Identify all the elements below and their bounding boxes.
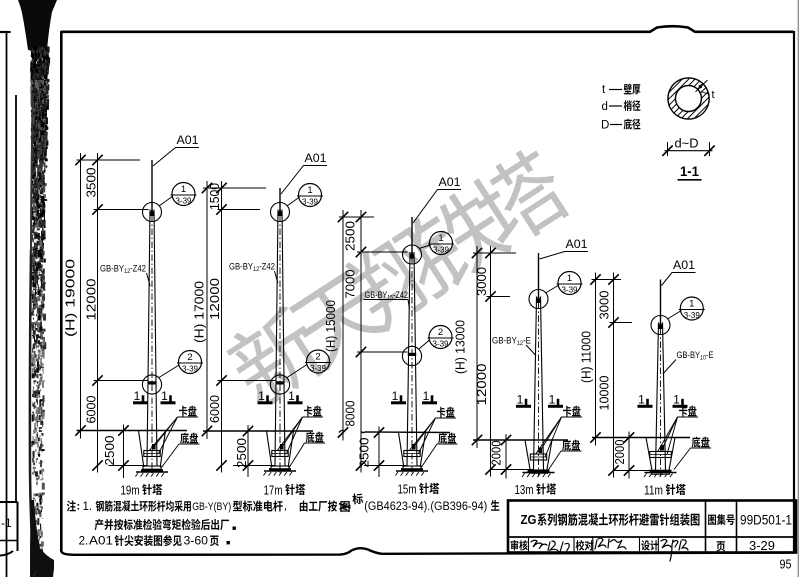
- svg-text:2: 2: [315, 352, 320, 363]
- svg-text:12000: 12000: [84, 279, 99, 321]
- svg-text:3-39: 3-39: [310, 363, 326, 373]
- svg-text:17m: 17m: [264, 484, 283, 498]
- svg-text:19m: 19m: [121, 484, 140, 498]
- svg-text:d~D: d~D: [675, 137, 699, 151]
- svg-text:6000: 6000: [207, 395, 222, 423]
- svg-text:GB-Y(BY): GB-Y(BY): [192, 501, 231, 513]
- svg-text:D: D: [601, 120, 609, 132]
- svg-text:1: 1: [689, 299, 694, 310]
- svg-text:99D501-1: 99D501-1: [740, 513, 792, 528]
- svg-text:11m: 11m: [644, 484, 663, 498]
- svg-text:1: 1: [438, 233, 443, 244]
- svg-text:3-39: 3-39: [433, 245, 449, 255]
- svg-text:1: 1: [392, 389, 399, 403]
- svg-text:10000: 10000: [597, 376, 612, 411]
- svg-text:GB-BY12-E: GB-BY12-E: [492, 336, 531, 348]
- svg-text:2500: 2500: [357, 438, 372, 468]
- svg-text:3000: 3000: [597, 291, 612, 320]
- svg-text:(H) 13000: (H) 13000: [453, 320, 468, 374]
- svg-text:1: 1: [307, 185, 312, 196]
- svg-text:1: 1: [161, 389, 168, 403]
- svg-text:,: ,: [284, 501, 287, 513]
- svg-text:3-39: 3-39: [433, 339, 449, 349]
- svg-text:2500: 2500: [102, 436, 117, 466]
- svg-text:1: 1: [673, 392, 680, 406]
- svg-text:3000: 3000: [474, 267, 489, 296]
- svg-text:A01: A01: [439, 177, 461, 189]
- svg-text:2500: 2500: [343, 221, 358, 251]
- svg-text:3-39: 3-39: [302, 197, 318, 207]
- svg-text:GB-BY12-Z42: GB-BY12-Z42: [229, 262, 275, 274]
- svg-text:3-29: 3-29: [749, 538, 775, 553]
- svg-text:1500: 1500: [207, 183, 222, 210]
- svg-text:d: d: [602, 101, 608, 113]
- svg-text:1: 1: [181, 184, 186, 195]
- svg-text:1: 1: [517, 392, 524, 406]
- svg-text:1: 1: [638, 392, 645, 406]
- svg-text:12000: 12000: [474, 364, 489, 406]
- svg-text:13m: 13m: [515, 483, 534, 497]
- svg-text:2500: 2500: [234, 438, 249, 468]
- svg-text:95: 95: [780, 558, 792, 572]
- svg-text:3-39: 3-39: [684, 310, 700, 320]
- svg-text:6000: 6000: [84, 396, 99, 424]
- svg-text:(H) 11000: (H) 11000: [579, 331, 594, 383]
- svg-text:8000: 8000: [343, 401, 358, 427]
- svg-text:12000: 12000: [207, 278, 222, 320]
- svg-text:(H) 17000: (H) 17000: [192, 281, 207, 343]
- svg-text:2: 2: [187, 352, 192, 363]
- svg-text:3-39: 3-39: [562, 285, 578, 295]
- svg-text:1.: 1.: [83, 501, 93, 513]
- svg-text:A01: A01: [305, 153, 327, 165]
- svg-text:-1: -1: [1, 516, 12, 530]
- svg-text:2: 2: [438, 327, 443, 338]
- svg-text:A01: A01: [673, 260, 695, 272]
- svg-text:(H) 15000: (H) 15000: [323, 300, 338, 352]
- svg-text:7000: 7000: [343, 270, 358, 299]
- svg-text:1: 1: [567, 273, 572, 284]
- svg-text:A01: A01: [177, 135, 199, 147]
- svg-text:ZG: ZG: [521, 512, 537, 527]
- svg-text::: :: [77, 501, 81, 513]
- svg-text:A01: A01: [566, 239, 588, 251]
- svg-text:t: t: [712, 89, 715, 101]
- svg-text:(GB4623-94).(GB396-94): (GB4623-94).(GB396-94): [364, 501, 487, 513]
- svg-text:3-39: 3-39: [182, 364, 198, 374]
- svg-text:2.: 2.: [79, 535, 89, 547]
- svg-text:A01: A01: [89, 535, 113, 547]
- svg-text:3-60: 3-60: [184, 535, 209, 547]
- svg-text:2000: 2000: [612, 440, 627, 465]
- svg-text:1: 1: [134, 389, 141, 403]
- svg-text:1: 1: [423, 389, 430, 403]
- svg-text:1-1: 1-1: [680, 164, 699, 179]
- svg-text:3-39: 3-39: [176, 196, 192, 206]
- svg-text:1: 1: [549, 392, 556, 406]
- svg-text:(H) 19000: (H) 19000: [63, 259, 78, 337]
- svg-text:2000: 2000: [489, 441, 504, 466]
- svg-text:1: 1: [288, 389, 295, 403]
- svg-text:3500: 3500: [84, 168, 99, 198]
- svg-text:GB-BY10-E: GB-BY10-E: [677, 350, 714, 362]
- svg-text:GB-BY12-Z42: GB-BY12-Z42: [100, 264, 146, 276]
- svg-text:1: 1: [258, 389, 265, 403]
- svg-text:15m: 15m: [398, 483, 417, 497]
